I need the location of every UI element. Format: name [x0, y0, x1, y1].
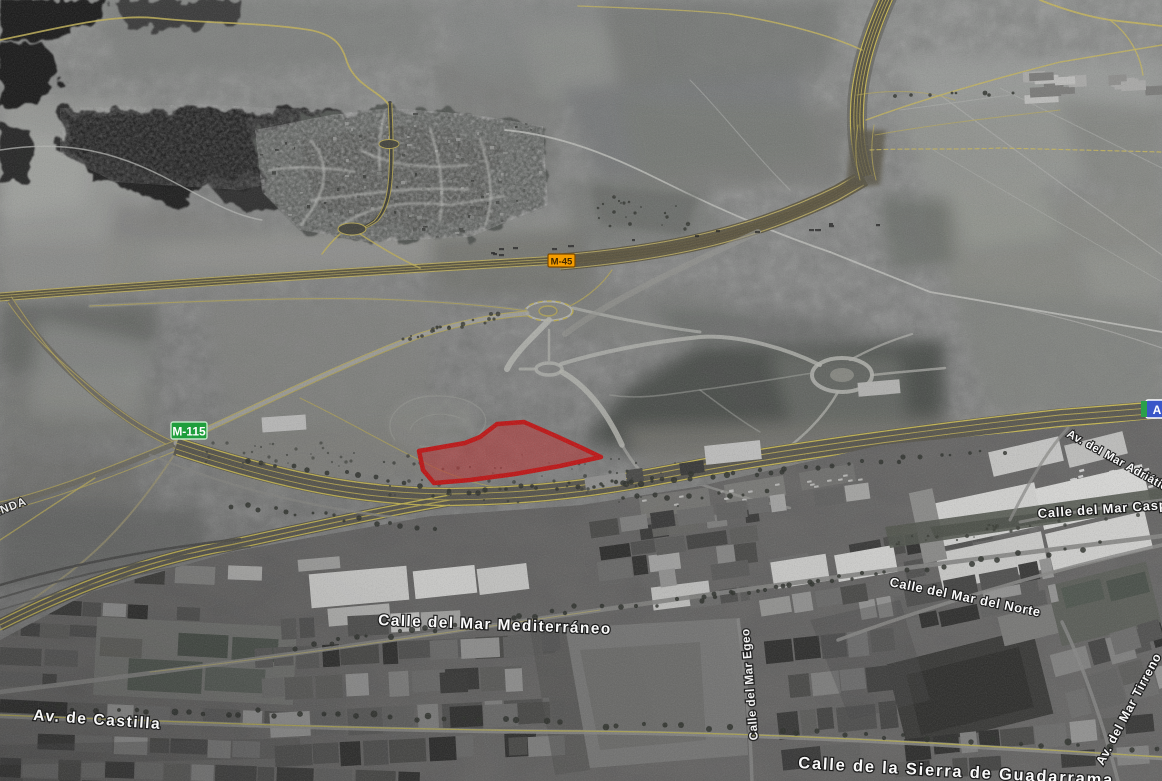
- svg-text:A: A: [1153, 403, 1162, 417]
- svg-text:M-45: M-45: [551, 257, 573, 268]
- svg-text:M-115: M-115: [172, 425, 206, 439]
